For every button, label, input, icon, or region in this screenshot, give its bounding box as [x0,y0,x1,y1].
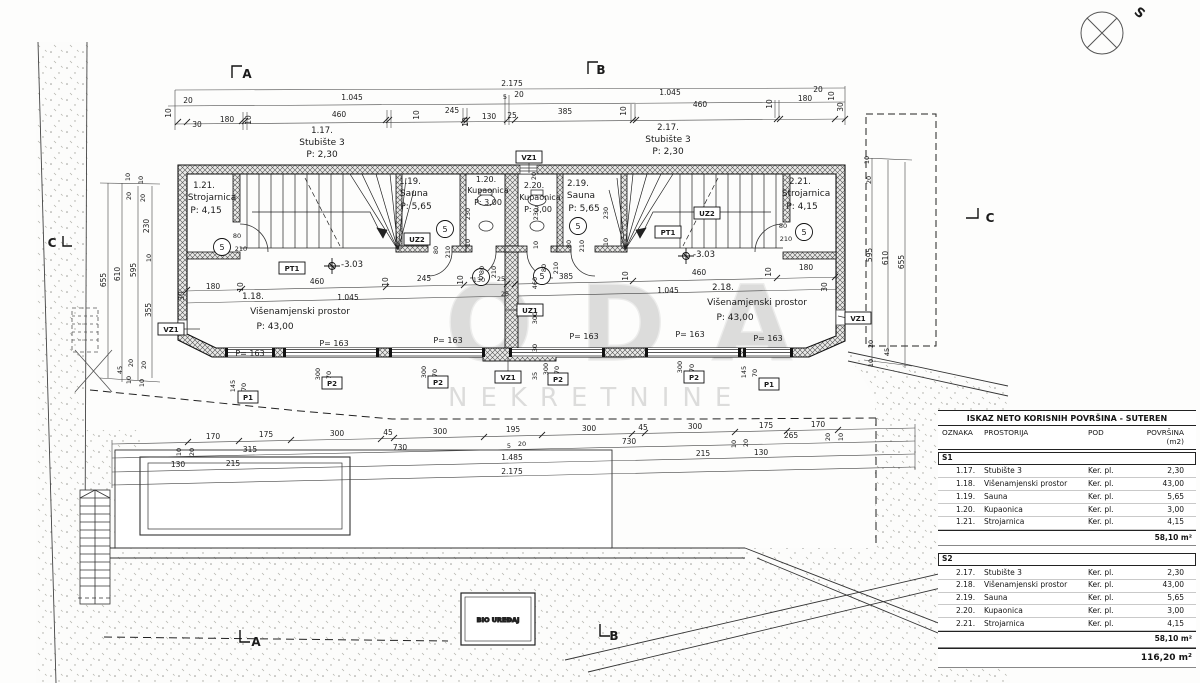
dim-label: 130 [754,448,769,457]
section-s2-rows: 2.17.Stubište 3Ker. pl.2,302.18.Višenamj… [938,567,1196,631]
parapet-label: P= 163 [319,339,348,348]
dim-label: 20 [140,361,148,369]
dim-label: 145 [740,366,748,378]
bio-device-label: BIO UREĐAJ [477,616,520,624]
door-tag: 5 [570,218,587,235]
dim-label: 300 [676,361,684,373]
dim-label: 20 [183,96,193,105]
zone2-id: 2.18. [712,283,734,293]
table-row: 2.20.KupaonicaKer. pl.3,00 [938,605,1196,618]
dim-tick [185,439,191,445]
dim-label: 25 [501,290,509,298]
zone1-id: 1.18. [242,292,264,302]
dim-label: 170 [811,420,826,429]
door-tag: 5 [796,224,813,241]
table-cell: 2.19. [942,594,984,603]
dim-tick [481,434,487,440]
room-1-19-area: P: 5,65 [400,202,431,212]
dim-label: 595 [129,263,138,278]
dim-label: 45 [116,366,124,374]
dim-label: 210 [444,246,452,258]
dim-label: 265 [784,431,799,440]
table-row: 2.17.Stubište 3Ker. pl.2,30 [938,567,1196,580]
room-1-20-id: 1.20. [476,175,496,184]
table-cell: 4,15 [1134,620,1184,629]
marker-uz2-left: UZ2 [404,233,430,245]
dim-label: 1.045 [337,293,359,302]
section-b-top: B [596,63,605,77]
table-row: 1.18.Višenamjenski prostorKer. pl.43,00 [938,478,1196,491]
dim-tick [383,117,389,123]
table-cell: 3,00 [1134,506,1184,515]
zone2-area: P: 43,00 [716,313,753,323]
svg-text:P1: P1 [764,381,774,389]
dim-label: 610 [113,267,122,282]
dim-label: 385 [558,107,573,116]
zone1-name: Višenamjenski prostor [250,306,350,317]
dim-label: 80 [233,232,241,240]
dim-label: 20 [867,340,875,348]
dim-label: 5 [507,442,511,450]
dim-label: 30 [820,282,829,292]
marker-uz1: UZ1 [517,304,543,316]
dim-label: 70 [240,383,248,391]
dim-label: 210 [780,235,792,243]
table-cell: 43,00 [1134,480,1184,489]
dim-label: 230 [602,207,610,219]
table-cell: Ker. pl. [1088,581,1134,590]
marker-vz1-bottom: VZ1 [495,371,521,383]
table-cell: 2,30 [1134,569,1184,578]
section-b-bottom: B [609,629,618,643]
dim-label: 80 [540,264,548,272]
table-cell: Ker. pl. [1088,620,1134,629]
dim-tick [539,432,545,438]
dim-label: 70 [751,369,759,377]
dim-label: 180 [798,94,813,103]
svg-text:PT1: PT1 [661,229,676,237]
section-s2-subtotal: 58,10 m² [938,631,1196,648]
window-tag-p1: P1 [759,378,779,390]
dashed-extension-outline [866,114,936,346]
marker-vz1-left: VZ1 [158,323,184,335]
dim-label: 25 [507,111,517,120]
svg-text:5: 5 [575,222,580,231]
dim-label: 10 [164,108,173,118]
area-table: ISKAZ NETO KORISNIH POVRŠINA - SUTEREN O… [938,410,1196,668]
stair1-area: P: 2,30 [306,150,338,160]
room-1-20-name: Kupaonica [467,186,508,195]
table-row: 1.21.StrojarnicaKer. pl.4,15 [938,517,1196,530]
table-cell: Stubište 3 [984,467,1088,476]
dim-label: 70 [553,366,561,374]
section-a-top: A [242,67,252,81]
marker-uz2-right: UZ2 [694,207,720,219]
dim-label: 30 [531,344,539,352]
dim-label: 300 [582,424,597,433]
dim-label: 70 [431,369,439,377]
table-cell: Ker. pl. [1088,607,1134,616]
dim-tick [777,116,783,122]
dim-label: 10 [867,359,875,367]
room-2-21-id: 2.21. [789,177,811,187]
room-2-20-id: 2.20. [524,181,544,190]
marker-pt1-left: PT1 [279,262,305,274]
table-cell: 1.21. [942,518,984,527]
dim-label: 300 [420,366,428,378]
table-cell: Sauna [984,493,1088,502]
marker-vz1-top: VZ1 [516,151,542,163]
dim-label: 655 [897,255,906,270]
dim-label: 180 [799,263,814,272]
svg-text:P2: P2 [553,376,563,384]
dim-label: 20 [125,192,133,200]
section-c-right: C [986,211,995,225]
room-2-19-area: P: 5,65 [568,204,599,214]
table-row: 2.19.SaunaKer. pl.5,65 [938,593,1196,606]
dim-label: 10 [863,156,871,164]
table-row: 1.20.KupaonicaKer. pl.3,00 [938,504,1196,517]
dim-label: 215 [696,449,711,458]
dim-label: 175 [759,421,774,430]
dim-label: 2.175 [501,79,523,88]
dim-label: 10 [621,271,630,281]
dim-label: 10 [464,239,472,247]
table-cell: Ker. pl. [1088,493,1134,502]
dim-label: 10 [532,241,540,249]
svg-text:UZ2: UZ2 [699,210,715,218]
svg-text:PT1: PT1 [285,265,300,273]
table-cell: 2,30 [1134,467,1184,476]
dim-label: 10 [236,282,245,292]
table-cell: Višenamjenski prostor [984,581,1088,590]
table-cell: 1.18. [942,480,984,489]
table-row: 1.17.Stubište 3Ker. pl.2,30 [938,466,1196,479]
window [283,348,379,357]
dim-label: 315 [243,445,258,454]
table-cell: 5,65 [1134,493,1184,502]
door-tag: 5 [214,239,231,256]
sink [479,221,493,231]
dim-label: 230 [142,219,151,234]
dim-label: 300 [531,312,539,324]
dim-label: 80 [432,246,440,254]
table-cell: 1.19. [942,493,984,502]
table-cell: Ker. pl. [1088,480,1134,489]
table-cell: 2.20. [942,607,984,616]
table-cell: 2.18. [942,581,984,590]
dim-label: 20 [813,85,823,94]
dim-label: 20 [188,448,196,456]
dim-label: 10 [244,115,253,125]
room-1-21-area: P: 4,15 [190,206,221,216]
room-1-20-area: P: 3,00 [474,198,502,207]
dim-label: 175 [259,430,274,439]
dim-label: 170 [206,432,221,441]
dim-label: 45 [883,348,891,356]
dim-label: 610 [881,251,890,266]
dim-label: 10 [381,277,390,287]
dim-tick [288,437,294,443]
dim-label: 1.485 [501,453,523,462]
sink [530,221,544,231]
table-cell: Strojarnica [984,518,1088,527]
dim-label: 20 [824,433,832,441]
window [389,348,485,357]
col-prostorija: PROSTORIJA [984,429,1088,446]
table-cell: 2.17. [942,569,984,578]
floor-plan-sheet: ODA NEKRETNINE [0,0,1200,683]
dim-label: 10 [124,173,132,181]
room-2-19-id: 2.19. [567,179,589,189]
table-header: OZNAKA PROSTORIJA POD POVRŠINA (m2) [938,426,1196,450]
dim-tick [633,117,639,123]
zone1-area: P: 43,00 [256,322,293,332]
parapet-label: P= 163 [569,332,598,341]
dim-label: 730 [622,437,637,446]
dim-label: 300 [542,363,550,375]
dim-label: 80 [779,222,787,230]
zone2-name: Višenamjenski prostor [707,297,807,308]
elevation-right: -3.03 [693,250,715,260]
dim-label: 20 [139,194,147,202]
dim-label: 145 [229,380,237,392]
table-row: 2.21.StrojarnicaKer. pl.4,15 [938,618,1196,631]
svg-text:P2: P2 [433,379,443,387]
parapet-label: P= 163 [235,349,264,358]
dim-label: 30 [836,102,845,112]
svg-text:P2: P2 [327,380,337,388]
dim-label: 460 [332,110,347,119]
dim-label: 10 [730,440,738,448]
dim-label: 245 [445,106,460,115]
dim-label: 230 [532,208,540,220]
dim-label: 215 [226,459,241,468]
section-s1-badge: S1 [938,452,1196,465]
table-cell: Sauna [984,594,1088,603]
room-2-21-name: Strojarnica [782,189,830,199]
dim-label: 730 [393,443,408,452]
dim-label: 35 [531,372,539,380]
dim-label: 10 [137,176,145,184]
dim-tick [835,427,841,433]
table-cell: Ker. pl. [1088,467,1134,476]
table-cell: 43,00 [1134,581,1184,590]
dim-label: 70 [325,371,333,379]
parapet-label: P= 163 [433,336,462,345]
dim-label: 45 [638,423,648,432]
table-total: 116,20 m² [938,648,1196,668]
room-1-21-id: 1.21. [193,181,215,191]
dim-label: 20 [530,172,538,180]
stair2-name: Stubište 3 [645,134,691,145]
dim-label: 10 [602,238,610,246]
dim-label: 130 [171,460,186,469]
dim-label: 20 [518,440,526,448]
room-1-19-id: 1.19. [399,177,421,187]
dim-label: 385 [559,272,574,281]
table-row: 1.19.SaunaKer. pl.5,65 [938,491,1196,504]
table-cell: Kupaonica [984,607,1088,616]
parapet-label: P= 163 [675,330,704,339]
dim-label: 1.045 [659,88,681,97]
dim-label: 70 [688,364,696,372]
dim-label: 20 [865,176,873,184]
stair2-id: 2.17. [657,123,679,133]
elevation-left: -3.03 [341,260,363,270]
svg-text:5: 5 [801,228,806,237]
col-pod: POD [1088,429,1134,446]
dim-label: 210 [578,240,586,252]
compass-s: S [1131,5,1148,23]
dim-label: 300 [433,427,448,436]
outdoor-stairs [78,490,112,604]
dim-label: 300 [314,368,322,380]
dim-label: 10 [456,275,465,285]
dim-label: 2.175 [501,467,523,476]
table-cell: 5,65 [1134,594,1184,603]
marker-pt1-right: PT1 [655,226,681,238]
dim-label: 20 [127,359,135,367]
dim-label: 80 [478,266,486,274]
table-cell: Višenamjenski prostor [984,480,1088,489]
section-s1-rows: 1.17.Stubište 3Ker. pl.2,301.18.Višenamj… [938,466,1196,530]
dim-label: 10 [461,117,470,127]
stairs-unit1 [240,174,414,250]
window [743,348,793,357]
table-cell: 4,15 [1134,518,1184,527]
dim-label: 10 [412,110,421,120]
windows [225,348,793,357]
stair1-id: 1.17. [311,126,333,136]
dim-label: 10 [619,106,628,116]
dim-label: 20 [742,439,750,447]
section-a-bottom: A [251,635,261,649]
dim-label: 10 [175,448,183,456]
table-cell: 2.21. [942,620,984,629]
compass-icon [1081,12,1123,54]
svg-text:VZ1: VZ1 [521,154,536,162]
dim-label: 10 [827,91,836,101]
col-povrsina: POVRŠINA (m2) [1134,429,1184,446]
window [645,348,741,357]
window [509,348,605,357]
svg-text:5: 5 [539,272,544,281]
table-cell: Kupaonica [984,506,1088,515]
dim-label: 230 [464,208,472,220]
svg-text:P2: P2 [689,374,699,382]
dim-label: 655 [99,273,108,288]
svg-text:5: 5 [442,225,447,234]
dim-label: 210 [552,262,560,274]
room-1-21-name: Strojarnica [188,193,236,203]
dim-label: 10 [765,99,774,109]
dim-label: 180 [206,282,221,291]
dim-label: 20 [514,90,524,99]
dim-label: 30 [177,291,186,301]
dim-label: 130 [473,276,485,284]
dim-label: 80 [565,240,573,248]
svg-text:VZ1: VZ1 [163,326,178,334]
dim-label: 210 [490,266,498,278]
bracket-c-right [966,208,978,218]
dim-tick [732,429,738,435]
dim-label: 300 [688,422,703,431]
table-row: 2.18.Višenamjenski prostorKer. pl.43,00 [938,580,1196,593]
dim-label: 130 [482,112,497,121]
svg-text:VZ1: VZ1 [500,374,515,382]
section-s2-badge: S2 [938,553,1196,566]
dim-label: 245 [417,274,432,283]
table-cell: Strojarnica [984,620,1088,629]
dim-label: 460 [693,100,708,109]
bracket-a-top [232,66,242,78]
dim-label: 45 [383,428,393,437]
table-cell: Ker. pl. [1088,506,1134,515]
party-wall [505,174,518,348]
svg-text:UZ2: UZ2 [409,236,425,244]
dim-label: 10 [837,433,845,441]
dim-label: 5 [503,93,507,101]
svg-text:5: 5 [219,243,224,252]
room-1-19-name: Sauna [400,189,428,199]
room-2-20-name: Kupaonica [519,193,560,202]
parapet-label: P= 163 [753,334,782,343]
dim-label: 300 [330,429,345,438]
svg-text:VZ1: VZ1 [850,315,865,323]
window-tag-p1: P1 [238,391,258,403]
dim-label: 10 [125,376,133,384]
dim-label: 1.045 [657,286,679,295]
bio-device-box: BIO UREĐAJ [461,593,535,645]
dim-label: 180 [220,115,235,124]
dim-label: 210 [235,245,247,253]
dim-tick [236,438,242,444]
room-2-21-area: P: 4,15 [786,202,817,212]
dim-label: 10 [138,379,146,387]
table-cell: Ker. pl. [1088,569,1134,578]
dim-label: 1.045 [341,93,363,102]
dim-label: 10 [764,267,773,277]
table-cell: Ker. pl. [1088,518,1134,527]
dim-label: 460 [531,277,539,289]
dim-label: 460 [692,268,707,277]
dim-label: 595 [865,248,874,263]
marker-vz1-right: VZ1 [845,312,871,324]
table-cell: 3,00 [1134,607,1184,616]
room-2-19-name: Sauna [567,191,595,201]
section-s1-subtotal: 58,10 m² [938,530,1196,547]
table-title: ISKAZ NETO KORISNIH POVRŠINA - SUTEREN [938,410,1196,426]
dim-label: 10 [145,254,153,262]
stair1-name: Stubište 3 [299,137,345,148]
dim-label: 30 [192,120,202,129]
dim-label: 355 [144,303,153,318]
table-cell: Ker. pl. [1088,594,1134,603]
dim-label: 460 [310,277,325,286]
svg-text:NEKRETNINE: NEKRETNINE [448,383,744,413]
table-cell: 1.17. [942,467,984,476]
table-cell: 1.20. [942,506,984,515]
svg-text:P1: P1 [243,394,253,402]
table-cell: Stubište 3 [984,569,1088,578]
dim-label: 25 [497,275,505,283]
section-c-left: C [48,236,57,250]
door-tag: 5 [437,221,454,238]
col-oznaka: OZNAKA [942,429,984,446]
dim-label: 195 [506,425,521,434]
stair2-area: P: 2,30 [652,147,684,157]
